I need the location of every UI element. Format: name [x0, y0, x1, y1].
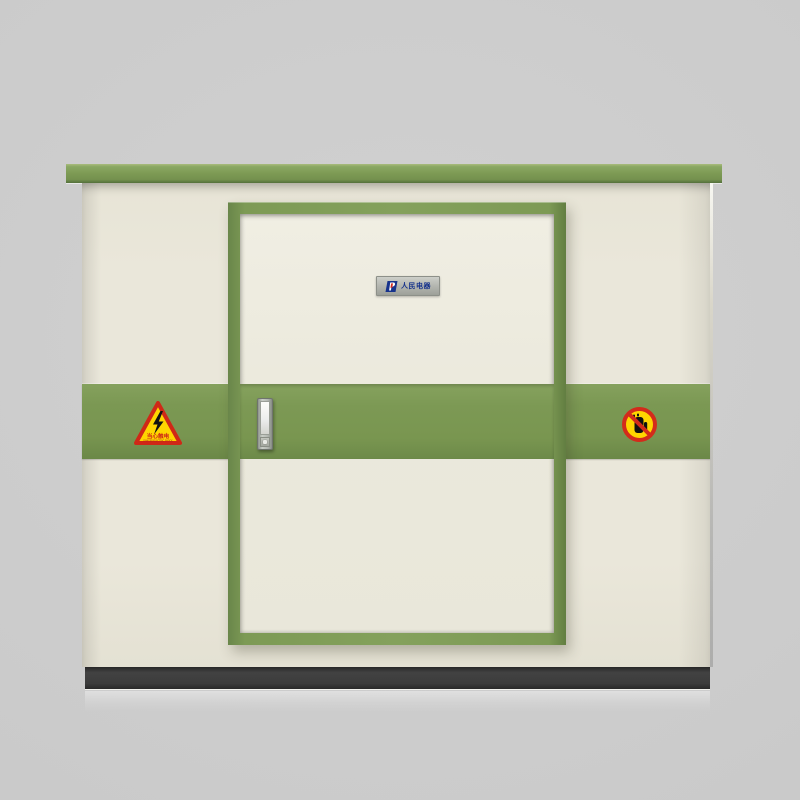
floor-reflection	[85, 691, 710, 712]
door-panel: 人民电器	[240, 214, 554, 633]
no-touch-warning-sticker	[621, 406, 658, 443]
people-electric-logo	[385, 280, 398, 293]
brand-name-text: 人民电器	[401, 281, 431, 291]
cabinet-roof-lid	[66, 164, 722, 183]
cabinet-right-edge-highlight	[710, 183, 713, 667]
cabinet-door: 人民电器	[228, 202, 566, 645]
handle-recess	[260, 401, 270, 435]
no-touch-hand-icon	[621, 406, 658, 443]
handle-lock	[260, 437, 270, 447]
warning-triangle-icon: 当心触电 DANGER!ELECTRIC SHOCK	[134, 401, 182, 447]
brand-plate: 人民电器	[376, 276, 440, 296]
cabinet-base	[85, 667, 710, 689]
warning-subtitle-text: DANGER!ELECTRIC SHOCK	[143, 439, 173, 442]
electric-shock-warning-sticker: 当心触电 DANGER!ELECTRIC SHOCK	[134, 401, 182, 447]
product-photo-stage: 当心触电 DANGER!ELECTRIC SHOCK	[0, 0, 800, 800]
door-green-band	[240, 384, 554, 459]
door-handle	[257, 398, 273, 450]
